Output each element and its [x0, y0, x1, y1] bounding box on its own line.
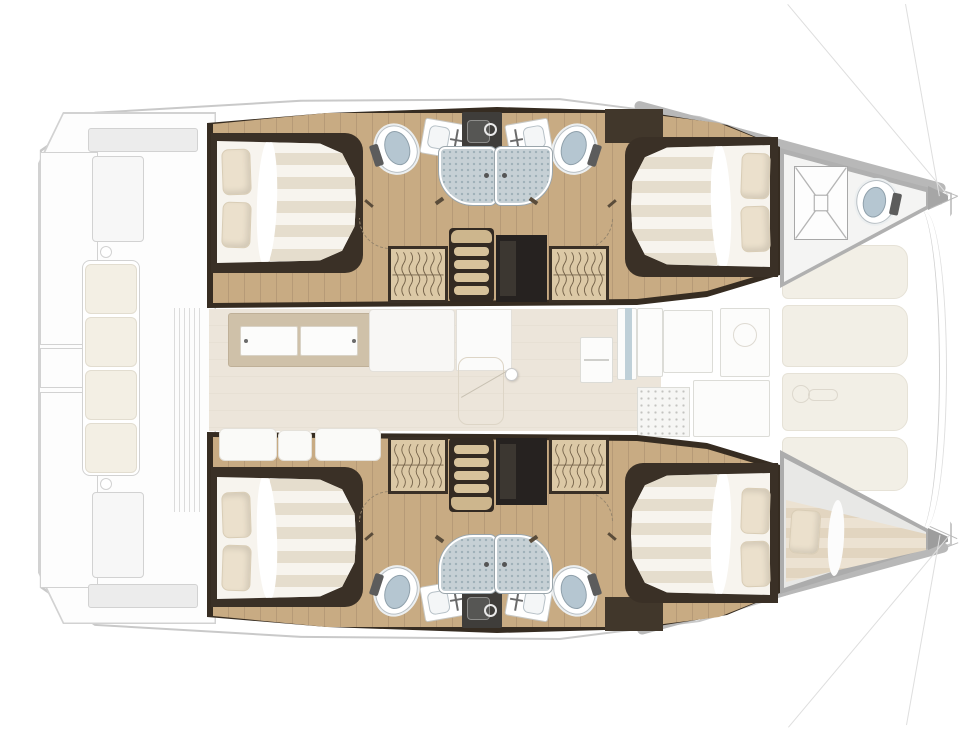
duvet [270, 141, 356, 263]
step [454, 273, 489, 282]
toilet-lid [556, 571, 591, 612]
bench-cushion [85, 423, 137, 473]
galley-counter [693, 380, 770, 437]
cockpit-shelf [88, 128, 198, 152]
stove-burner [733, 323, 757, 347]
saloon-seat-cushion [315, 428, 381, 461]
bench-cushion [85, 264, 137, 314]
door-handle [352, 339, 356, 343]
duvet [631, 145, 717, 267]
step [454, 286, 489, 295]
pillow [740, 206, 771, 253]
step-landing [451, 230, 492, 243]
bench-cushion [85, 370, 137, 420]
pillow [221, 202, 252, 249]
landing-panel [500, 241, 516, 296]
bench-cushion [85, 317, 137, 367]
pillow [740, 488, 771, 535]
corner-seat [92, 156, 144, 242]
step [454, 471, 489, 480]
companionway-landing [496, 235, 547, 302]
aft-cockpit [38, 112, 218, 624]
saloon-furniture [209, 309, 661, 464]
rug-outline [458, 357, 504, 425]
winch-icon [100, 478, 112, 490]
saloon-sofa [369, 309, 455, 372]
galley-counter [663, 310, 713, 373]
catamaran-floorplan [0, 0, 972, 729]
dial-icon [484, 123, 497, 136]
shower-door-knob [484, 562, 489, 567]
saloon-seat-cushion [278, 430, 312, 461]
pillow [221, 149, 252, 196]
step [454, 484, 489, 493]
saloon-door-knob [505, 368, 518, 381]
cockpit-sliding-door [174, 308, 204, 512]
duvet [270, 477, 356, 599]
utility-cabinet [462, 112, 502, 150]
forepeak-port [780, 140, 965, 292]
step [454, 247, 489, 256]
basin [522, 589, 547, 615]
shower-door-knob [502, 562, 507, 567]
hull-port-interior [207, 107, 780, 310]
corner-seat [92, 492, 144, 578]
toilet-lid [860, 185, 889, 220]
duvet [631, 473, 717, 595]
toilet-lid [380, 571, 415, 612]
pillow [221, 545, 252, 592]
companionway-steps [449, 228, 494, 302]
foredeck-locker [782, 305, 908, 367]
dial-icon [484, 604, 497, 617]
pillow [221, 492, 252, 539]
toilet-lid [380, 128, 415, 169]
wardrobe [549, 246, 609, 303]
forepeak-starboard [780, 448, 965, 598]
door-handle [244, 339, 248, 343]
windlass-icon [808, 389, 838, 401]
pillow [740, 541, 771, 588]
cockpit-shelf [88, 584, 198, 608]
basin [426, 589, 451, 615]
winch-icon [100, 246, 112, 258]
saloon-seat-cushion [219, 428, 277, 461]
pillow [789, 509, 822, 555]
wardrobe [388, 246, 448, 303]
deck-hatch [794, 166, 848, 240]
utility-cabinet [462, 590, 502, 628]
toilet-lid [556, 128, 591, 169]
shower-door-knob [484, 173, 489, 178]
sideboard-door [240, 326, 298, 356]
sideboard-door [300, 326, 358, 356]
pillow [740, 153, 771, 200]
shower-door-knob [502, 173, 507, 178]
step [454, 260, 489, 269]
step-landing [451, 497, 492, 510]
